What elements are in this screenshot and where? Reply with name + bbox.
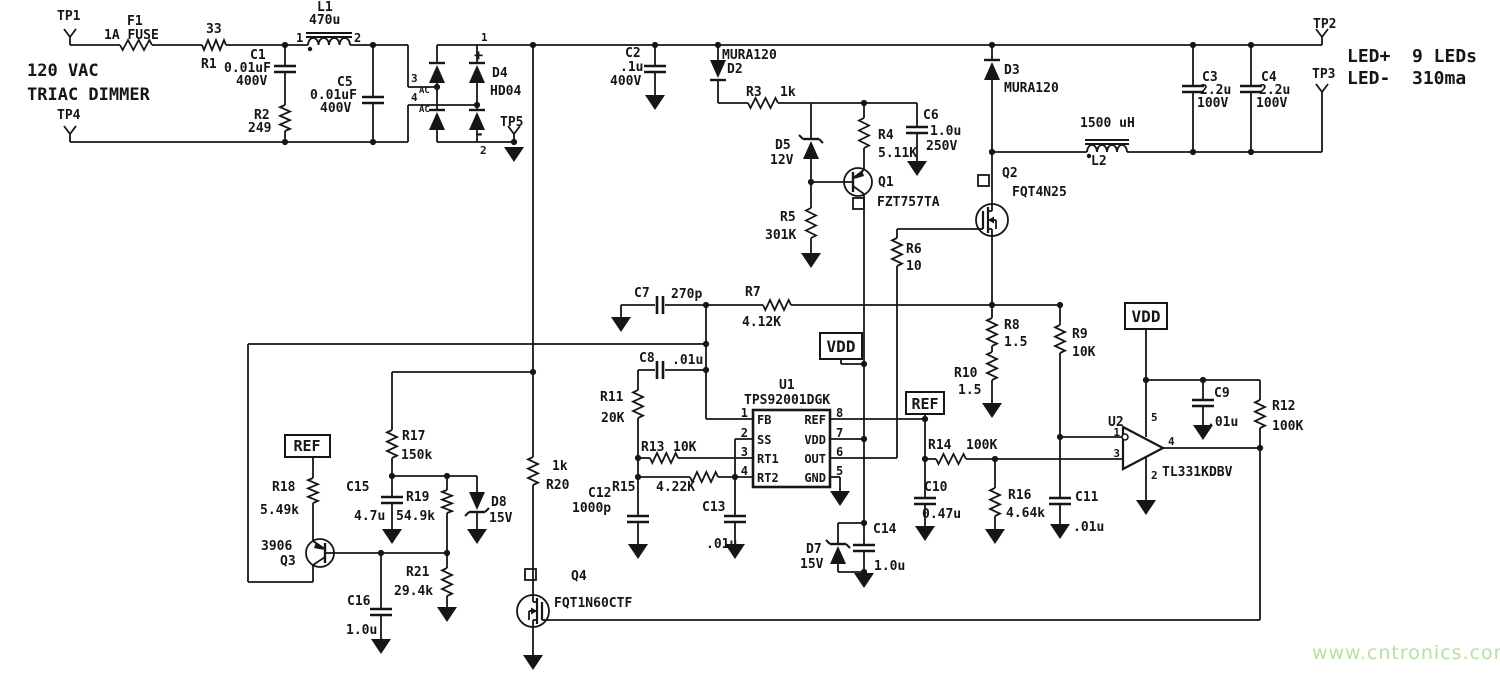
resistor-R20-symbol: [528, 457, 538, 485]
ground-arrow-icon: [628, 544, 648, 559]
label-u2n5: 5: [1151, 411, 1158, 424]
resistor-R9-symbol: [1055, 325, 1065, 353]
label-d3: D3: [1004, 63, 1020, 78]
label-tp4: TP4: [57, 108, 81, 123]
resistor-R10-symbol: [987, 352, 997, 380]
label-ss: SS: [757, 433, 771, 447]
junction-dot: [732, 474, 738, 480]
label-bminus: -: [475, 125, 484, 143]
ground-arrow-icon: [982, 403, 1002, 418]
junction-dot: [282, 42, 288, 48]
label-q4: Q4: [571, 569, 587, 584]
junction-dot: [861, 361, 867, 367]
label-r15: R15: [612, 480, 635, 495]
diode-D3-symbol: [984, 62, 1000, 80]
label-r1: R1: [201, 57, 217, 72]
ground-arrow-icon: [645, 95, 665, 110]
junction-dot: [1248, 149, 1254, 155]
label-bp1: 1: [481, 31, 488, 44]
junction-dot: [703, 367, 709, 373]
package-pad-icon: [978, 175, 989, 186]
ground-arrow-icon: [830, 491, 850, 506]
label-l1v: 470u: [309, 13, 340, 28]
label-u2n4: 4: [1168, 435, 1175, 448]
label-r8v: 1.5: [1004, 335, 1027, 350]
label-d4v: HD04: [490, 84, 521, 99]
label-c16: C16: [347, 594, 371, 609]
label-c8v: .01u: [672, 353, 703, 368]
junction-dot: [474, 102, 480, 108]
label-u2n2: 2: [1151, 469, 1158, 482]
label-r21v: 29.4k: [394, 584, 433, 599]
junction-dot: [635, 455, 641, 461]
schematic-canvas: TP1F11A FUSE33R1120 VACTRIAC DIMMERTP4C1…: [0, 0, 1500, 677]
label-f1v: 1A FUSE: [104, 28, 159, 43]
label-c1vv: 400V: [236, 74, 267, 89]
resistor-R1-symbol: [202, 40, 226, 50]
label-outp: OUT: [804, 452, 826, 466]
label-r11: R11: [600, 390, 624, 405]
ground-arrow-icon: [523, 655, 543, 670]
label-bplus: +: [474, 46, 483, 64]
label-r19: R19: [406, 490, 429, 505]
junction-dot: [861, 100, 867, 106]
junction-dot: [989, 149, 995, 155]
resistor-R17-symbol: [387, 430, 397, 458]
label-r16: R16: [1008, 488, 1032, 503]
junction-dot: [703, 302, 709, 308]
label-r14: R14: [928, 438, 952, 453]
zener-D5-symbol: [799, 135, 803, 139]
zener-D7-symbol: [830, 546, 846, 564]
label-d3v: MURA120: [1004, 81, 1059, 96]
label-vddp: VDD: [804, 433, 826, 447]
junction-dot: [282, 139, 288, 145]
junction-dot: [444, 473, 450, 479]
junction-dot: [434, 84, 440, 90]
package-pad-icon: [853, 198, 864, 209]
zener-D8-symbol: [469, 492, 485, 510]
label-u2n3: 3: [1113, 447, 1120, 460]
label-ledm: LED-: [1347, 68, 1390, 89]
label-c6v: 1.0u: [930, 124, 961, 139]
label-r18v: 5.49k: [260, 503, 299, 518]
label-u1n5: 5: [836, 464, 843, 478]
ground-arrow-icon: [854, 573, 874, 588]
junction-dot: [530, 369, 536, 375]
comparator-U2-symbol: [1123, 427, 1163, 469]
label-r7v: 4.12K: [742, 315, 781, 330]
label-r12: R12: [1272, 399, 1295, 414]
label-c4vv: 100V: [1256, 96, 1287, 111]
label-q2: Q2: [1002, 166, 1018, 181]
junction-dot: [703, 341, 709, 347]
label-r12v: 100K: [1272, 419, 1303, 434]
label-r17v: 150k: [401, 448, 432, 463]
label-r4v: 5.11K: [878, 146, 917, 161]
ground-arrow-icon: [1136, 500, 1156, 515]
label-r6: R6: [906, 242, 922, 257]
label-r15v: 4.22K: [656, 480, 695, 495]
label-q2v: FQT4N25: [1012, 185, 1067, 200]
label-r3v: 1k: [780, 85, 796, 100]
label-u1n8: 8: [836, 406, 843, 420]
junction-dot: [715, 42, 721, 48]
junction-dot: [1200, 377, 1206, 383]
label-bp2: 2: [480, 144, 487, 157]
label-c13v: .01u: [706, 537, 737, 552]
label-c9: C9: [1214, 386, 1230, 401]
junction-dot: [1057, 434, 1063, 440]
label-r5v: 301K: [765, 228, 796, 243]
label-ledp: LED+: [1347, 46, 1391, 67]
label-d7: D7: [806, 542, 822, 557]
label-d2: D2: [727, 62, 743, 77]
label-r3: R3: [746, 85, 762, 100]
label-d5v: 12V: [770, 153, 794, 168]
label-bac1: AC: [419, 86, 430, 96]
label-rt1: RT1: [757, 452, 779, 466]
label-rt2: RT2: [757, 471, 779, 485]
label-c11v: .01u: [1073, 520, 1104, 535]
label-r5: R5: [780, 210, 796, 225]
label-d4: D4: [492, 66, 508, 81]
junction-dot: [1257, 445, 1263, 451]
label-c14v: 1.0u: [874, 559, 905, 574]
label-c15v: 4.7u: [354, 509, 385, 524]
diode-D4a-symbol: [429, 65, 445, 83]
label-q3v: 3906: [261, 539, 292, 554]
label-c5vv: 400V: [320, 101, 351, 116]
inductor-L2-symbol: [1087, 145, 1127, 152]
label-c6: C6: [923, 108, 939, 123]
ground-arrow-icon: [985, 529, 1005, 544]
label-u1n6: 6: [836, 445, 843, 459]
label-r11v: 20K: [601, 411, 625, 426]
label-r14v: 100K: [966, 438, 997, 453]
label-r9: R9: [1072, 327, 1088, 342]
resistor-R14-symbol: [936, 454, 966, 464]
label-fb: FB: [757, 413, 771, 427]
resistor-R16-symbol: [990, 488, 1000, 516]
ground-arrow-icon: [371, 639, 391, 654]
label-c10v: 0.47u: [922, 507, 961, 522]
inductor-L1-dot: [308, 47, 312, 51]
label-c6vv: 250V: [926, 139, 957, 154]
label-r10: R10: [954, 366, 978, 381]
label-c16v: 1.0u: [346, 623, 377, 638]
ground-arrow-icon: [467, 529, 487, 544]
label-c14: C14: [873, 522, 897, 537]
testpoint-icon: [70, 126, 76, 134]
label-refp: REF: [804, 413, 826, 427]
label-d7v: 15V: [800, 557, 824, 572]
diode-D4c-symbol: [429, 112, 445, 130]
testpoint-icon: [64, 126, 70, 134]
ground-arrow-icon: [801, 253, 821, 268]
testpoint-icon: [64, 29, 70, 37]
label-c7v: 270p: [671, 287, 702, 302]
label-d2v: MURA120: [722, 48, 777, 63]
label-vdd1: VDD: [827, 337, 856, 356]
resistor-R18-symbol: [308, 478, 318, 503]
resistor-R4-symbol: [859, 118, 869, 148]
label-u1n4: 4: [741, 464, 748, 478]
label-c7: C7: [634, 286, 650, 301]
label-c3vv: 100V: [1197, 96, 1228, 111]
label-ledc: 310ma: [1412, 68, 1466, 89]
label-u2v: TL331KDBV: [1162, 465, 1233, 480]
junction-dot: [1190, 42, 1196, 48]
resistor-R21-symbol: [442, 568, 452, 596]
resistor-R8-symbol: [987, 318, 997, 346]
testpoint-icon: [1322, 84, 1328, 92]
junction-dot: [922, 416, 928, 422]
zener-D8-symbol: [465, 512, 469, 516]
resistor-R2-symbol: [280, 105, 290, 131]
junction-dot: [989, 42, 995, 48]
label-tp1: TP1: [57, 9, 81, 24]
resistor-R7-symbol: [763, 300, 791, 310]
transistor-Q3-symbol: [313, 557, 325, 565]
resistor-R12-symbol: [1255, 400, 1265, 428]
junction-dot: [861, 520, 867, 526]
ground-arrow-icon: [915, 526, 935, 541]
ground-arrow-icon: [907, 161, 927, 176]
label-r20: R20: [546, 478, 570, 493]
label-bp4: 4: [411, 91, 418, 104]
junction-dot: [444, 550, 450, 556]
schematic-page: TP1F11A FUSE33R1120 VACTRIAC DIMMERTP4C1…: [0, 0, 1500, 677]
ground-arrow-icon: [382, 529, 402, 544]
junction-dot: [808, 179, 814, 185]
transistor-Q1-symbol: [853, 186, 864, 194]
watermark: www.cntronics.com: [1312, 642, 1500, 664]
label-ttl1: 120 VAC: [27, 61, 99, 81]
label-q1: Q1: [878, 175, 894, 190]
junction-dot: [378, 550, 384, 556]
ground-arrow-icon: [1050, 524, 1070, 539]
junction-dot: [992, 456, 998, 462]
label-c2: C2: [625, 46, 641, 61]
label-c8: C8: [639, 351, 655, 366]
ground-arrow-icon: [437, 607, 457, 622]
label-r18: R18: [272, 480, 296, 495]
label-d5: D5: [775, 138, 791, 153]
label-f1: F1: [127, 14, 143, 29]
label-u1: U1: [779, 378, 795, 393]
resistor-R5-symbol: [806, 208, 816, 238]
junction-dot: [530, 42, 536, 48]
label-r2v: 249: [248, 121, 271, 136]
junction-dot: [1057, 302, 1063, 308]
label-q4v: FQT1N60CTF: [554, 596, 632, 611]
label-r4: R4: [878, 128, 894, 143]
junction-dot: [370, 139, 376, 145]
label-r13v: 10K: [673, 440, 697, 455]
label-u2n1: 1: [1113, 426, 1120, 439]
testpoint-icon: [70, 29, 76, 37]
label-ref1: REF: [293, 437, 320, 455]
label-tp3: TP3: [1312, 67, 1335, 82]
label-vdd2: VDD: [1132, 307, 1161, 326]
label-c12: C12: [588, 486, 611, 501]
resistor-R6-symbol: [892, 238, 902, 266]
label-bac2: AC: [419, 105, 430, 115]
label-tp5: TP5: [500, 115, 523, 130]
junction-dot: [370, 42, 376, 48]
label-r10v: 1.5: [958, 383, 981, 398]
label-r7: R7: [745, 285, 761, 300]
zener-D7-symbol: [846, 544, 850, 548]
label-u1n2: 2: [741, 426, 748, 440]
label-c15: C15: [346, 480, 369, 495]
zener-D5-symbol: [803, 141, 819, 159]
label-c2vv: 400V: [610, 74, 641, 89]
label-ledn: 9 LEDs: [1412, 46, 1477, 67]
label-r21: R21: [406, 565, 430, 580]
junction-dot: [652, 42, 658, 48]
label-q1v: FZT757TA: [877, 195, 940, 210]
label-c11: C11: [1075, 490, 1099, 505]
label-r17: R17: [402, 429, 425, 444]
label-l1p2: 2: [354, 31, 361, 45]
label-c12v: 1000p: [572, 501, 611, 516]
label-c9v: .01u: [1207, 415, 1238, 430]
junction-dot: [389, 473, 395, 479]
zener-D7-symbol: [826, 540, 830, 544]
label-u1n1: 1: [741, 406, 748, 420]
label-l2: L2: [1091, 154, 1107, 169]
label-r13: R13: [641, 440, 664, 455]
inductor-L1-symbol: [308, 38, 350, 45]
label-c2v: .1u: [620, 60, 643, 75]
label-l1p1: 1: [296, 31, 303, 45]
testpoint-icon: [1316, 84, 1322, 92]
junction-dot: [1248, 42, 1254, 48]
label-r6v: 10: [906, 259, 922, 274]
label-r20v: 1k: [552, 459, 568, 474]
label-r8: R8: [1004, 318, 1020, 333]
label-ttl2: TRIAC DIMMER: [27, 85, 151, 105]
junction-dot: [635, 474, 641, 480]
junction-dot: [1143, 377, 1149, 383]
label-d8: D8: [491, 495, 507, 510]
diode-D4b-symbol: [469, 65, 485, 83]
label-q3: Q3: [280, 554, 296, 569]
label-gndp: GND: [804, 471, 826, 485]
zener-D5-symbol: [819, 139, 823, 143]
resistor-R11-symbol: [633, 390, 643, 418]
label-r19v: 54.9k: [396, 509, 435, 524]
label-d8v: 15V: [489, 511, 513, 526]
label-r1v: 33: [206, 22, 222, 37]
label-r9v: 10K: [1072, 345, 1096, 360]
ground-arrow-icon: [504, 147, 524, 162]
label-c13: C13: [702, 500, 725, 515]
ground-arrow-icon: [611, 317, 631, 332]
label-r16v: 4.64k: [1006, 506, 1045, 521]
junction-dot: [861, 436, 867, 442]
label-u1v: TPS92001DGK: [744, 393, 830, 408]
comparator-U2-inverting-bubble: [1122, 434, 1128, 440]
label-ref2: REF: [911, 395, 938, 413]
label-u1n7: 7: [836, 426, 843, 440]
label-bp3: 3: [411, 72, 418, 85]
package-pad-icon: [525, 569, 536, 580]
label-l2v: 1500 uH: [1080, 116, 1135, 131]
resistor-R19-symbol: [442, 490, 452, 513]
junction-dot: [922, 456, 928, 462]
junction-dot: [989, 302, 995, 308]
label-tp2: TP2: [1313, 17, 1336, 32]
label-u1n3: 3: [741, 445, 748, 459]
junction-dot: [1190, 149, 1196, 155]
label-c10: C10: [924, 480, 948, 495]
